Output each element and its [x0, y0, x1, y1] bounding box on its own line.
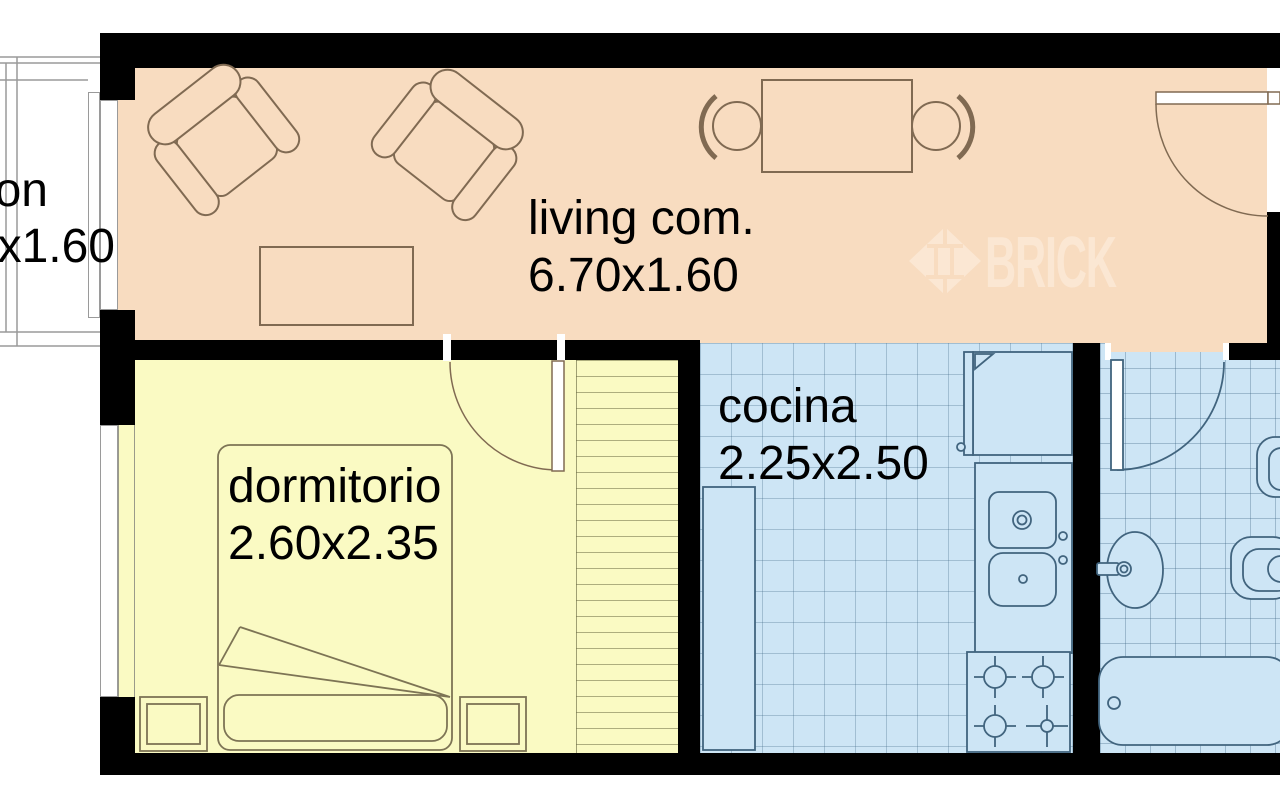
living-window-gap	[100, 100, 118, 310]
wall-kitchen-bathroom	[1073, 343, 1100, 775]
wall-bottom-left-pier	[100, 697, 135, 775]
bedroom-door-jamb-left	[443, 334, 451, 361]
kitchen-dims: 2.25x2.50	[718, 435, 929, 492]
bedroom-closet	[576, 360, 679, 753]
bathroom-door-jamb-left	[1105, 343, 1111, 360]
bedroom-name: dormitorio	[228, 458, 441, 515]
bathroom-door-jamb-right	[1223, 343, 1229, 360]
wall-bedroom-kitchen	[678, 340, 700, 775]
wall-top-left-pier	[100, 33, 135, 100]
bedroom-door-jamb-right	[557, 334, 565, 361]
balcony-dims-fragment: x1.60	[0, 218, 115, 275]
bedroom-window-sill	[118, 425, 135, 697]
bathroom-floor	[1100, 343, 1280, 753]
wall-living-bedroom	[100, 340, 700, 360]
bedroom-label: dormitorio 2.60x2.35	[228, 458, 441, 572]
bedroom-window	[100, 425, 118, 697]
balcony-name-fragment: on	[0, 162, 48, 219]
bedroom-dims: 2.60x2.35	[228, 515, 441, 572]
living-room-name: living com.	[528, 190, 755, 247]
wall-bathroom-top	[1225, 343, 1280, 360]
kitchen-label: cocina 2.25x2.50	[718, 378, 929, 492]
bathroom-door-opening	[1111, 343, 1223, 352]
entry-door-opening	[1267, 68, 1280, 212]
wall-left-mid-pier	[100, 310, 135, 425]
wall-right-living	[1267, 212, 1280, 343]
living-room-dims: 6.70x1.60	[528, 247, 755, 304]
floor-plan: BRICK	[0, 0, 1280, 800]
watermark-brand: BRICK	[985, 222, 1116, 304]
wall-bottom	[100, 753, 1280, 775]
living-room-label: living com. 6.70x1.60	[528, 190, 755, 304]
wall-top	[100, 33, 1280, 68]
kitchen-name: cocina	[718, 378, 929, 435]
living-window	[88, 92, 100, 318]
